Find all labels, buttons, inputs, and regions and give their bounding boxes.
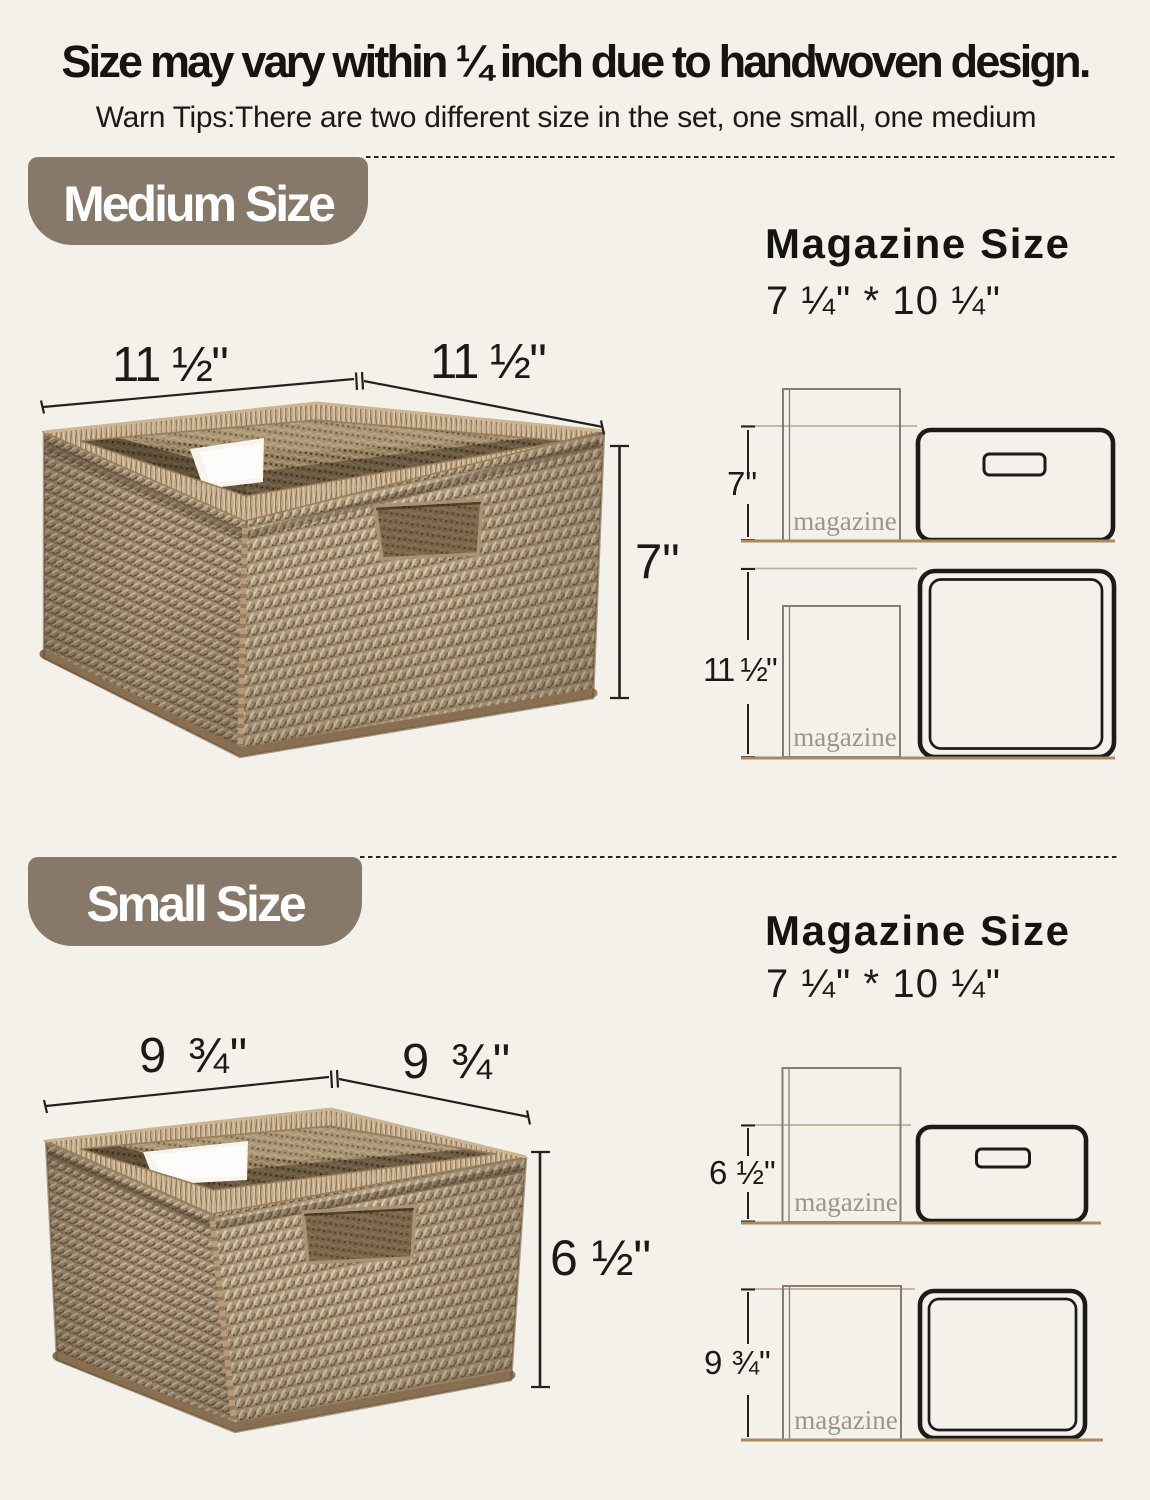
- svg-text:9 ¾": 9 ¾": [704, 1344, 771, 1381]
- svg-text:magazine: magazine: [794, 1187, 897, 1217]
- svg-text:7": 7": [727, 465, 757, 502]
- svg-text:6 ½": 6 ½": [709, 1154, 776, 1191]
- svg-text:magazine: magazine: [794, 1405, 897, 1435]
- svg-text:magazine: magazine: [793, 506, 896, 536]
- svg-text:magazine: magazine: [793, 722, 896, 752]
